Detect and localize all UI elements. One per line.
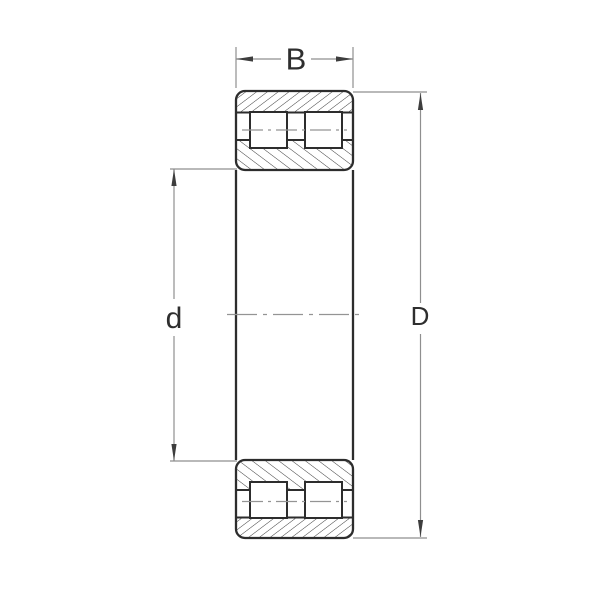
arrowhead-up <box>418 93 423 110</box>
dim-label-d: d <box>166 302 183 335</box>
dimension-b: B <box>236 42 353 89</box>
cylindrical-roller-bearing-cross-section: B d D <box>0 0 600 600</box>
arrowhead-down <box>171 444 176 461</box>
bearing-bottom-section <box>236 460 353 538</box>
arrowhead-up <box>171 169 176 186</box>
bearing-drawing-canvas: B d D <box>0 0 600 600</box>
arrowhead-left <box>236 56 253 61</box>
roller <box>250 482 287 518</box>
dimension-d-bore: d <box>166 169 237 461</box>
arrowhead-down <box>418 520 423 537</box>
outer-ring-bottom-hatch <box>236 518 353 539</box>
bearing-top-section <box>236 91 353 170</box>
arrowhead-right <box>336 56 353 61</box>
dimension-d-outer: D <box>353 92 429 538</box>
dim-label-b: B <box>286 42 307 77</box>
outer-ring-top-hatch <box>236 91 353 113</box>
roller <box>305 482 342 518</box>
dim-label-outer-d: D <box>411 301 430 331</box>
